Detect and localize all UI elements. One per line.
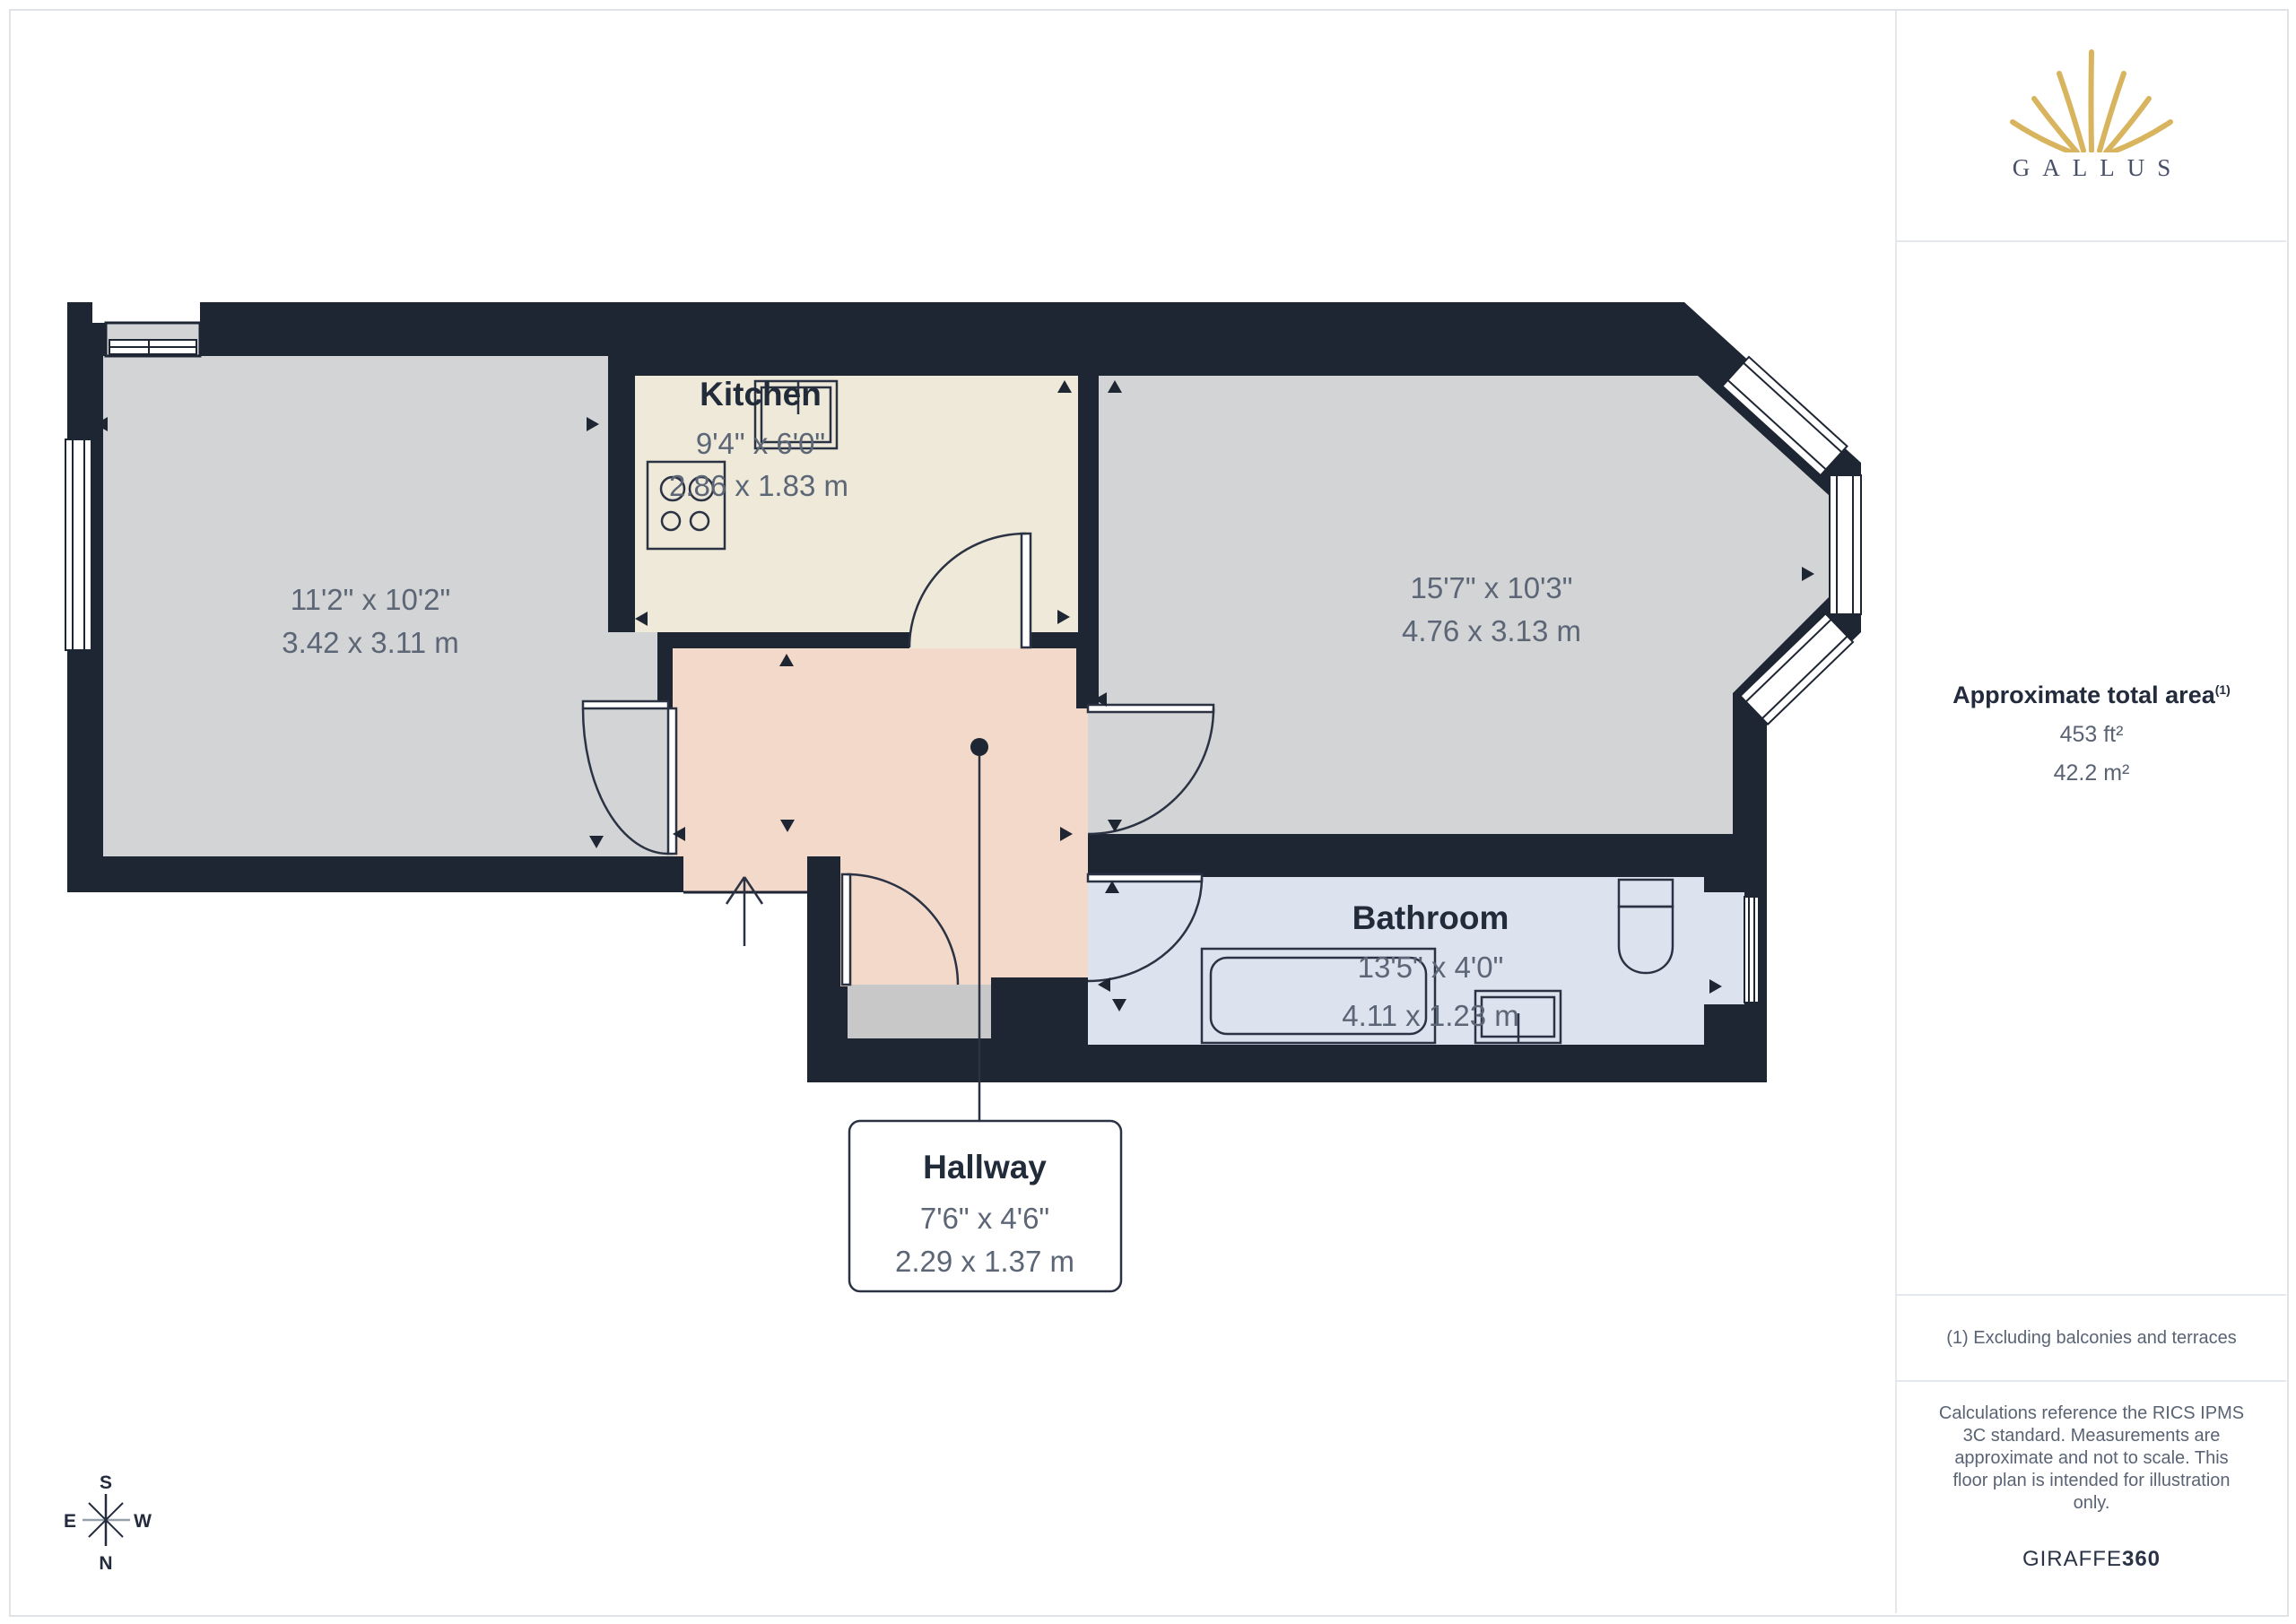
logo-block: GALLUS [1897, 11, 2286, 240]
wall-stub-kitchen-right [1076, 632, 1099, 708]
hallway-dim-metric: 2.29 x 1.37 m [895, 1245, 1074, 1278]
compass-top: S [100, 1472, 112, 1493]
bathroom-dim-imperial: 13'5" x 4'0" [1358, 951, 1504, 984]
disclaimer-line: 3C standard. Measurements are [1897, 1425, 2286, 1447]
hallway-leader-dot [970, 738, 988, 756]
total-area-block: Approximate total area(1) 453 ft² 42.2 m… [1897, 682, 2286, 786]
footnote-block: (1) Excluding balconies and terraces [1897, 1294, 2286, 1382]
kitchen-floor [635, 376, 1078, 632]
living-dim-imperial: 11'2" x 10'2" [291, 583, 451, 616]
bay-window-middle [1830, 475, 1861, 614]
compass-left: E [64, 1511, 76, 1532]
total-area-heading: Approximate total area(1) [1897, 682, 2286, 709]
giraffe360-brand-bold: 360 [2122, 1547, 2161, 1571]
disclaimer-line: only. [1897, 1492, 2286, 1515]
compass-bottom: N [99, 1553, 112, 1574]
total-area-imperial: 453 ft² [1897, 722, 2286, 748]
gallus-logo-wordmark: GALLUS [1897, 154, 2286, 182]
giraffe360-brand-regular: GIRAFFE [2022, 1547, 2122, 1571]
bathroom-title: Bathroom [1352, 899, 1509, 936]
chimney-bay [106, 323, 200, 356]
hallway-dim-imperial: 7'6" x 4'6" [920, 1202, 1049, 1235]
total-area-metric: 42.2 m² [1897, 760, 2286, 786]
giraffe360-brand: GIRAFFE360 [1897, 1547, 2286, 1572]
bathroom-window [1744, 897, 1759, 1003]
total-area-heading-text: Approximate total area [1952, 682, 2215, 708]
footnote-text: (1) Excluding balconies and terraces [1946, 1328, 2237, 1349]
footnote-marker: (1) [2215, 682, 2231, 697]
disclaimer-line: Calculations reference the RICS IPMS [1897, 1403, 2286, 1425]
disclaimer-block: Calculations reference the RICS IPMS 3C … [1897, 1403, 2286, 1572]
wall-stub-entry [807, 856, 840, 1082]
hallway-callout: Hallway 7'6" x 4'6" 2.29 x 1.37 m [849, 1121, 1121, 1291]
disclaimer-line: approximate and not to scale. This [1897, 1447, 2286, 1470]
reception-dim-metric: 4.76 x 3.13 m [1402, 614, 1581, 647]
reception-dim-imperial: 15'7" x 10'3" [1411, 571, 1573, 604]
kitchen-dim-metric: 2.86 x 1.83 m [669, 469, 848, 502]
compass-right: W [134, 1511, 152, 1532]
wall-below-bathroom-door [991, 977, 1088, 1082]
compass-icon: S N E W [64, 1472, 152, 1574]
entry-threshold [848, 985, 991, 1038]
hallway-floor [673, 648, 1088, 986]
info-sidebar: GALLUS Approximate total area(1) 453 ft²… [1895, 11, 2286, 1613]
sidebar-divider [1897, 240, 2286, 242]
kitchen-title: Kitchen [700, 376, 822, 413]
gallus-logo-icon [1993, 36, 2190, 152]
hallway-title: Hallway [923, 1149, 1047, 1185]
floorplan-page: Kitchen 9'4" x 6'0" 2.86 x 1.83 m 11'2" … [0, 0, 2296, 1624]
kitchen-dim-imperial: 9'4" x 6'0" [696, 427, 825, 460]
bathroom-dim-metric: 4.11 x 1.23 m [1342, 999, 1519, 1032]
living-room-window [65, 439, 91, 650]
living-dim-metric: 3.42 x 3.11 m [282, 626, 459, 659]
disclaimer-line: floor plan is intended for illustration [1897, 1470, 2286, 1492]
